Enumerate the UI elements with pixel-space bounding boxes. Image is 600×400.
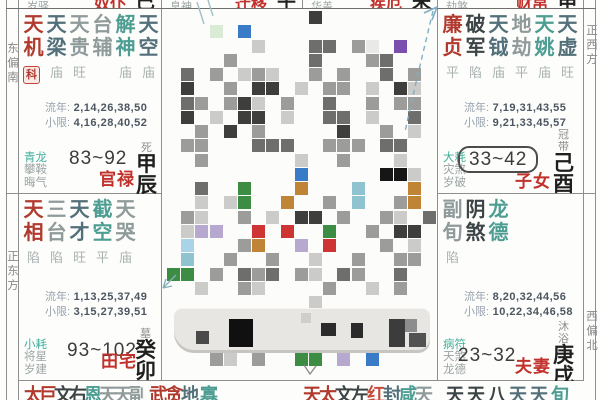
mosaic-pixel [210, 111, 223, 124]
shensha-item: 将星 [24, 351, 47, 364]
star-char-fragment: 天 [467, 381, 488, 400]
star-char: 钺 [487, 37, 510, 60]
star-char: 解 [114, 14, 137, 37]
star-column: 解神庙 [114, 14, 137, 77]
mosaic-pixel [252, 68, 265, 81]
star-char: 天 [22, 199, 45, 222]
mosaic-pixel [366, 225, 379, 238]
star-char-fragment: 天 [509, 381, 530, 400]
mosaic-pixel [408, 125, 421, 138]
star-list: 天机利天梁庙天贵旺台辅解神庙天空庙 [22, 14, 160, 77]
palace-name: 子女 [515, 167, 551, 192]
ganzhi-char: 庚 [553, 345, 574, 366]
liunian-label: 流年: [45, 102, 70, 114]
mosaic-pixel [252, 111, 265, 124]
star-char-fragment: 太 [319, 381, 335, 400]
star-char: 劫 [510, 37, 533, 60]
mosaic-pixel [281, 139, 294, 152]
fortune-number-lines: 流年: 1,13,25,37,49小限: 3,15,27,39,51 [45, 290, 147, 320]
star-char: 姚 [533, 37, 556, 60]
star-char-fragment: 八 [488, 381, 509, 400]
bar-block [301, 313, 311, 323]
mosaic-pixel [238, 239, 251, 252]
mosaic-pixel [408, 253, 421, 266]
star-brightness: 庙 [137, 62, 160, 77]
mosaic-pixel [266, 68, 279, 81]
star-column: 天才旺 [68, 199, 91, 262]
mosaic-pixel [408, 82, 421, 95]
liunian-values: 7,19,31,43,55 [489, 102, 566, 114]
mosaic-pixel [181, 253, 194, 266]
palace-name-fragment: 迁移 [235, 0, 267, 8]
mosaic-pixel [408, 196, 421, 209]
mosaic-pixel [309, 353, 322, 366]
mosaic-pixel [252, 125, 265, 138]
star-char-fragment: 寡 [200, 381, 216, 400]
star-brightness: 旺 [68, 62, 91, 77]
star-char: 天 [556, 14, 579, 37]
palace-guanlu: 天机利天梁庙天贵旺台辅解神庙天空庙科流年: 2,14,26,38,50小限: 4… [19, 9, 161, 193]
mosaic-pixel [252, 139, 265, 152]
mosaic-pixel [380, 139, 393, 152]
decade-age-range: 23~32 [458, 345, 516, 367]
shensha-list: 青龙攀鞍晦气 [24, 152, 47, 190]
star-char: 天 [45, 14, 68, 37]
mosaic-pixel [281, 111, 294, 124]
mosaic-pixel [281, 225, 294, 238]
mosaic-pixel [337, 268, 350, 281]
shensha-item: 岁破 [443, 177, 466, 190]
mosaic-pixel [224, 353, 237, 366]
star-char-fragment: 天 [446, 381, 467, 400]
fortune-number-lines: 流年: 7,19,31,43,55小限: 9,21,33,45,57 [464, 101, 566, 131]
palace-name-fragment: 疾厄 [370, 0, 402, 8]
mosaic-pixel [337, 211, 350, 224]
liunian-line: 流年: 8,20,32,44,56 [464, 290, 573, 305]
stem-branch-column: 墓癸卯 [135, 328, 156, 382]
mosaic-pixel [195, 211, 208, 224]
top-palace-cell-cropped: 华盖疾厄未 [303, 0, 437, 8]
ganzhi-char: 己 [553, 153, 574, 174]
mosaic-pixel [394, 268, 407, 281]
mosaic-pixel [238, 268, 251, 281]
star-brightness: 庙 [114, 62, 137, 77]
star-column: 廉贞平 [441, 14, 464, 77]
mosaic-pixel [366, 40, 379, 53]
star-column: 天虚旺 [556, 14, 579, 77]
mosaic-pixel [266, 268, 279, 281]
star-char: 截 [91, 199, 114, 222]
mosaic-pixel [323, 225, 336, 238]
shensha-item: 攀鞍 [24, 164, 47, 177]
ganzhi-char: 辰 [136, 175, 157, 196]
bottom-palace-cell-cropped: 太巨文右恩天天副 [19, 381, 144, 400]
star-brightness: 平 [510, 62, 533, 77]
mosaic-pixel [408, 97, 421, 110]
palace-tianzhai: 天相陷三台陷天才旺截空平天哭庙流年: 1,13,25,37,49小限: 3,15… [19, 194, 161, 380]
star-list: 副旬陷阴煞龙德 [441, 199, 510, 262]
mosaic-pixel [181, 68, 194, 81]
mosaic-pixel [295, 211, 308, 224]
mosaic-pixel [252, 97, 265, 110]
sihua-badge: 科 [23, 66, 40, 84]
star-column: 天空庙 [137, 14, 160, 77]
mosaic-pixel [181, 111, 194, 124]
branch-fragment: 未 [412, 0, 431, 8]
mosaic-pixel [352, 196, 365, 209]
liunian-line: 流年: 1,13,25,37,49 [45, 290, 147, 305]
bottom-palace-cell-cropped: 武贪地 寡 [144, 381, 299, 400]
bar-block [321, 323, 336, 336]
star-char: 天 [487, 14, 510, 37]
ganzhi-char: 酉 [553, 174, 574, 195]
mosaic-pixel [309, 253, 322, 266]
mosaic-pixel [252, 239, 265, 252]
mosaic-pixel [195, 97, 208, 110]
mosaic-pixel [394, 139, 407, 152]
mosaic-pixel [366, 82, 379, 95]
mosaic-pixel [266, 253, 279, 266]
mosaic-pixel [408, 225, 421, 238]
label-group: 财帛申 [516, 0, 577, 8]
mosaic-pixel [238, 182, 251, 195]
star-char-fragment: 地 [181, 381, 197, 400]
mosaic-pixel [252, 225, 265, 238]
mosaic-pixel [224, 97, 237, 110]
star-char: 空 [137, 37, 160, 60]
mosaic-pixel [408, 168, 421, 181]
star-char-fragment: 天 [99, 381, 114, 400]
star-char-fragment: 红 [367, 381, 383, 400]
star-char-fragment: 巨 [39, 381, 54, 400]
bar-block [229, 319, 253, 347]
star-brightness: 陷 [45, 247, 68, 262]
top-palace-cell-cropped: 息神迁移午 [162, 0, 302, 8]
mosaic-pixel [337, 353, 350, 366]
mosaic-pixel [238, 25, 251, 38]
mosaic-pixel [295, 353, 308, 366]
mosaic-pixel [238, 97, 251, 110]
star-char: 三 [45, 199, 68, 222]
star-char-fragment: 右 [69, 381, 84, 400]
mosaic-pixel [195, 182, 208, 195]
star-column: 龙德 [487, 199, 510, 262]
mosaic-pixel [352, 182, 365, 195]
shensha-fragment: 息神 [170, 0, 192, 8]
mosaic-pixel [352, 139, 365, 152]
star-char: 台 [91, 14, 114, 37]
star-char: 空 [91, 222, 114, 245]
mosaic-pixel [394, 82, 407, 95]
mosaic-pixel [394, 40, 407, 53]
mosaic-pixel [295, 268, 308, 281]
label-group: 迁移午 [235, 0, 296, 8]
direction-label-east-southeast: 东偏南 [6, 42, 17, 86]
star-char-fragment: 副 [129, 381, 144, 400]
star-list: 天相陷三台陷天才旺截空平天哭庙 [22, 199, 137, 262]
mosaic-pixel [295, 182, 308, 195]
fortune-number-lines: 流年: 2,14,26,38,50小限: 4,16,28,40,52 [45, 101, 147, 131]
mosaic-pixel [352, 253, 365, 266]
branch-fragment: 午 [277, 0, 296, 8]
ganzhi-char: 甲 [136, 154, 157, 175]
mosaic-pixel [366, 282, 379, 295]
lifecycle-stage-char: 沐 [558, 321, 569, 333]
star-char: 相 [22, 222, 45, 245]
direction-label-due-west: 正西方 [585, 24, 596, 68]
mosaic-pixel [408, 182, 421, 195]
star-char: 天 [137, 14, 160, 37]
star-char-fragment: 天 [415, 381, 431, 400]
mosaic-pixel [337, 139, 350, 152]
xiaoxian-line: 小限: 4,16,28,40,52 [45, 116, 147, 131]
bar-block [409, 333, 426, 347]
mosaic-pixel [252, 82, 265, 95]
xiaoxian-line: 小限: 10,22,34,46,58 [464, 305, 573, 320]
mosaic-pixel [323, 282, 336, 295]
star-brightness: 旺 [68, 247, 91, 262]
mosaic-pixel [195, 139, 208, 152]
star-column: 三台陷 [45, 199, 68, 262]
star-column: 天姚庙 [533, 14, 556, 77]
mosaic-pixel [181, 82, 194, 95]
mosaic-pixel [394, 253, 407, 266]
mosaic-pixel [238, 111, 251, 124]
mosaic-pixel [394, 211, 407, 224]
fortune-number-lines: 流年: 8,20,32,44,56小限: 10,22,34,46,58 [464, 290, 573, 320]
mosaic-pixel [337, 82, 350, 95]
star-char-fragment: 文 [335, 381, 351, 400]
xiaoxian-values: 4,16,28,40,52 [70, 117, 147, 129]
star-brightness: 庙 [533, 62, 556, 77]
star-char-fragment: 天 [530, 381, 551, 400]
mosaic-pixel [266, 139, 279, 152]
mosaic-pixel [394, 225, 407, 238]
mosaic-pixel [238, 196, 251, 209]
mosaic-pixel [181, 268, 194, 281]
blurred-toolbar [174, 308, 430, 350]
stem-branch-column: 冠带己酉 [553, 129, 574, 195]
mosaic-pixel [195, 125, 208, 138]
direction-label-west-northwest: 西偏北 [585, 310, 596, 354]
star-char: 军 [464, 37, 487, 60]
mosaic-pixel [366, 97, 379, 110]
mosaic-pixel [423, 211, 436, 224]
mosaic-pixel [394, 282, 407, 295]
branch-fragment: 巳 [136, 0, 155, 8]
mosaic-pixel [224, 253, 237, 266]
mosaic-pixel [281, 97, 294, 110]
mosaic-pixel [352, 268, 365, 281]
mosaic-pixel [252, 40, 265, 53]
mosaic-pixel [238, 282, 251, 295]
star-char-fragment: 封 [383, 381, 399, 400]
mosaic-pixel [167, 268, 180, 281]
star-brightness [487, 247, 510, 262]
liunian-values: 2,14,26,38,50 [70, 102, 147, 114]
star-brightness: 平 [441, 62, 464, 77]
censored-center-region [162, 9, 437, 380]
mosaic-pixel [210, 225, 223, 238]
shensha-fragment: 华盖 [311, 0, 333, 8]
star-char: 天 [114, 199, 137, 222]
mosaic-pixel [210, 25, 223, 38]
mosaic-pixel [380, 125, 393, 138]
star-char-fragment: 太 [24, 381, 39, 400]
mosaic-pixel [352, 40, 365, 53]
mosaic-pixel [252, 268, 265, 281]
ganzhi-char: 卯 [135, 361, 156, 382]
mosaic-pixel [266, 82, 279, 95]
mosaic-pixel [366, 111, 379, 124]
top-palace-cell-cropped: 劫煞财帛申 [438, 0, 583, 8]
xiaoxian-values: 9,21,33,45,57 [489, 117, 566, 129]
shensha-fragment: 劫煞 [446, 0, 468, 8]
liunian-label: 流年: [464, 102, 489, 114]
mosaic-pixel [309, 68, 322, 81]
star-char: 台 [45, 222, 68, 245]
mosaic-pixel [195, 154, 208, 167]
mosaic-pixel [210, 268, 223, 281]
star-char-fragment: 恩 [84, 381, 99, 400]
mosaic-pixel [366, 353, 379, 366]
mosaic-pixel [394, 168, 407, 181]
mosaic-pixel [323, 111, 336, 124]
xiaoxian-label: 小限: [464, 306, 489, 318]
mosaic-pixel [195, 196, 208, 209]
star-brightness [91, 62, 114, 77]
top-cell-clip: 劫煞财帛申 [438, 0, 583, 8]
label-group: 奴仆巳 [94, 0, 155, 8]
mosaic-pixel [323, 97, 336, 110]
star-brightness: 庙 [114, 247, 137, 262]
mosaic-pixel [181, 211, 194, 224]
bar-block [405, 319, 417, 332]
mosaic-pixel [210, 68, 223, 81]
mosaic-pixel [281, 196, 294, 209]
star-char-fragment: 武 [149, 381, 165, 400]
mosaic-pixel [309, 11, 322, 24]
shensha-list: 小耗将星岁建 [24, 339, 47, 377]
label-group: 疾厄未 [370, 0, 431, 8]
star-char: 天 [22, 14, 45, 37]
mosaic-pixel [195, 282, 208, 295]
star-column: 天贵旺 [68, 14, 91, 77]
mosaic-pixel [309, 54, 322, 67]
branch-fragment: 申 [558, 0, 577, 8]
mosaic-pixel [309, 40, 322, 53]
star-char: 煞 [464, 222, 487, 245]
star-char: 虚 [556, 37, 579, 60]
grid-line [583, 193, 595, 194]
star-char: 天 [68, 14, 91, 37]
xiaoxian-line: 小限: 3,15,27,39,51 [45, 305, 147, 320]
mosaic-pixel [380, 239, 393, 252]
star-char: 副 [441, 199, 464, 222]
mosaic-pixel [337, 68, 350, 81]
star-char: 廉 [441, 14, 464, 37]
star-column: 地劫平 [510, 14, 533, 77]
liunian-label: 流年: [45, 291, 70, 303]
star-char: 梁 [45, 37, 68, 60]
star-brightness: 陷 [22, 247, 45, 262]
star-char: 机 [22, 37, 45, 60]
grid-line [6, 193, 18, 194]
mosaic-pixel [295, 168, 308, 181]
mosaic-pixel [337, 154, 350, 167]
star-char-fragment: 贪 [165, 381, 181, 400]
xiaoxian-values: 3,15,27,39,51 [70, 306, 147, 318]
star-char-fragment: 文 [54, 381, 69, 400]
mosaic-pixel [238, 211, 251, 224]
star-list: 廉贞平破军陷天钺庙地劫平天姚庙天虚旺 [441, 14, 579, 77]
top-palace-cell-cropped: 岁驿奴仆巳 [19, 0, 161, 8]
mosaic-pixel [295, 154, 308, 167]
mosaic-pixel [366, 54, 379, 67]
mosaic-pixel [295, 82, 308, 95]
bottom-palace-cell-cropped: 天太文左红封咸天 [298, 381, 438, 400]
mosaic-pixel [210, 353, 223, 366]
star-brightness: 旺 [556, 62, 579, 77]
mosaic-pixel [323, 196, 336, 209]
palace-name: 官禄 [99, 165, 135, 190]
star-column: 天梁庙 [45, 14, 68, 77]
mosaic-pixel [323, 139, 336, 152]
star-brightness: 庙 [487, 62, 510, 77]
mosaic-pixel [380, 168, 393, 181]
mosaic-pixel [394, 196, 407, 209]
star-column: 副旬陷 [441, 199, 464, 262]
liunian-values: 8,20,32,44,56 [489, 291, 566, 303]
mosaic-pixel [252, 353, 265, 366]
mosaic-pixel [380, 211, 393, 224]
mosaic-pixel [323, 82, 336, 95]
liunian-label: 流年: [464, 291, 489, 303]
mosaic-pixel [181, 97, 194, 110]
palace-name: 夫妻 [515, 352, 551, 377]
star-brightness: 平 [91, 247, 114, 262]
shensha-item: 岁建 [24, 364, 47, 377]
star-char: 龙 [487, 199, 510, 222]
star-char-fragment: 旬 [551, 381, 572, 400]
star-column: 天钺庙 [487, 14, 510, 77]
star-char-fragment: 天 [114, 381, 129, 400]
star-column: 台辅 [91, 14, 114, 77]
star-brightness [464, 247, 487, 262]
lifecycle-stage-char: 冠 [558, 129, 569, 141]
star-brightness: 陷 [441, 247, 464, 262]
mosaic-pixel [323, 40, 336, 53]
mosaic-pixel [380, 54, 393, 67]
top-cell-clip: 华盖疾厄未 [303, 0, 437, 8]
star-char-fragment: 咸 [399, 381, 415, 400]
stem-branch-column: 死甲辰 [136, 142, 157, 196]
mosaic-pixel [238, 68, 251, 81]
star-char: 阴 [464, 199, 487, 222]
xiaoxian-label: 小限: [464, 117, 489, 129]
palace-zinv: 廉贞平破军陷天钺庙地劫平天姚庙天虚旺流年: 7,19,31,43,55小限: 9… [438, 9, 583, 193]
mosaic-pixel [181, 239, 194, 252]
mosaic-pixel [295, 239, 308, 252]
xiaoxian-label: 小限: [45, 117, 70, 129]
shensha-item: 小耗 [24, 339, 47, 352]
palace-name: 田宅 [101, 347, 137, 372]
mosaic-pixel [309, 211, 322, 224]
shensha-item: 青龙 [24, 152, 47, 165]
star-char: 神 [114, 37, 137, 60]
stem-branch-column: 沐浴庚戌 [553, 321, 574, 387]
star-char: 天 [533, 14, 556, 37]
